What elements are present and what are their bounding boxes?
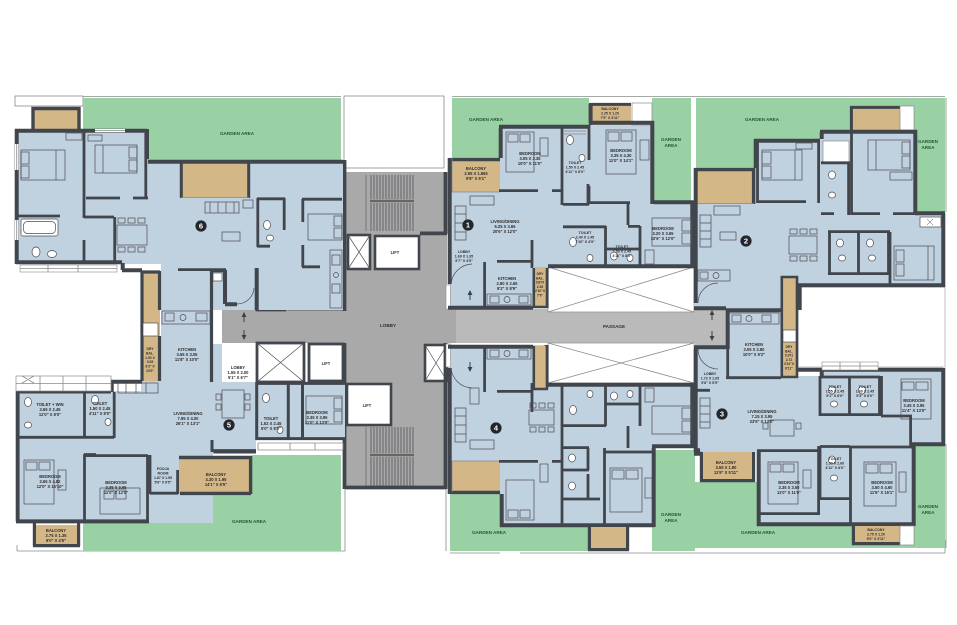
svg-text:7'10" X 4'9": 7'10" X 4'9" xyxy=(575,240,595,244)
svg-text:GARDEN AREA: GARDEN AREA xyxy=(469,117,504,122)
svg-text:1.50 X 2.60: 1.50 X 2.60 xyxy=(826,462,844,466)
svg-text:TOILET: TOILET xyxy=(829,385,843,389)
svg-text:6: 6 xyxy=(199,222,203,231)
svg-text:DRY: DRY xyxy=(146,347,154,351)
svg-text:3'3" X: 3'3" X xyxy=(145,365,155,369)
svg-text:11'0" X 11'6": 11'0" X 11'6" xyxy=(777,490,801,495)
svg-text:2.40 X 1.45: 2.40 X 1.45 xyxy=(576,236,594,240)
svg-text:1.00 X: 1.00 X xyxy=(145,356,156,360)
svg-text:2: 2 xyxy=(744,237,748,246)
svg-text:1.60 X 2.45: 1.60 X 2.45 xyxy=(856,390,874,394)
svg-text:4'11" X 8'0": 4'11" X 8'0" xyxy=(565,170,585,174)
svg-text:GARDEN: GARDEN xyxy=(918,504,939,509)
svg-text:11'4" X 13'0": 11'4" X 13'0" xyxy=(902,408,926,413)
svg-text:8'11": 8'11" xyxy=(785,367,793,371)
svg-text:1.50 X 2.45: 1.50 X 2.45 xyxy=(613,250,631,254)
svg-text:GARDEN: GARDEN xyxy=(661,512,682,517)
svg-text:10'6" X 12'0": 10'6" X 12'0" xyxy=(651,236,676,241)
svg-text:11'9" X 5'11": 11'9" X 5'11" xyxy=(714,470,738,475)
svg-text:12'0" X 8'0": 12'0" X 8'0" xyxy=(39,412,61,417)
svg-text:12'0" X 15'10": 12'0" X 15'10" xyxy=(37,484,64,489)
svg-text:LIFT: LIFT xyxy=(322,361,331,366)
svg-text:PASSAGE: PASSAGE xyxy=(603,324,625,329)
svg-text:11'0" X 12'0": 11'0" X 12'0" xyxy=(104,490,128,495)
svg-text:3: 3 xyxy=(720,410,724,419)
svg-text:9'0" X 3'11": 9'0" X 3'11" xyxy=(867,537,886,541)
svg-text:4'11" X 8'6": 4'11" X 8'6" xyxy=(825,466,845,470)
svg-text:TOILET: TOILET xyxy=(616,245,630,249)
svg-text:TOILET: TOILET xyxy=(859,385,873,389)
svg-text:11'0" X 13'0": 11'0" X 13'0" xyxy=(305,420,329,425)
svg-text:GARDEN AREA: GARDEN AREA xyxy=(472,530,507,535)
svg-text:7'5" X 3'11": 7'5" X 3'11" xyxy=(601,116,620,120)
svg-text:GARDEN: GARDEN xyxy=(661,137,682,142)
svg-text:4'11" X 8'0": 4'11" X 8'0" xyxy=(89,411,111,416)
svg-text:10'0": 10'0" xyxy=(146,369,154,373)
svg-text:1.67 X 1.95: 1.67 X 1.95 xyxy=(154,476,172,480)
svg-text:BAL.: BAL. xyxy=(146,351,154,355)
svg-text:9'0" X 4'5": 9'0" X 4'5" xyxy=(46,538,66,543)
svg-text:10'0" X 9'2": 10'0" X 9'2" xyxy=(743,352,765,357)
svg-text:5'7" X 4'5": 5'7" X 4'5" xyxy=(455,259,473,263)
svg-text:POOJA: POOJA xyxy=(157,467,170,471)
svg-text:GARDEN: GARDEN xyxy=(918,139,939,144)
svg-text:AREA: AREA xyxy=(921,510,935,515)
svg-text:1: 1 xyxy=(466,221,470,230)
svg-text:AREA: AREA xyxy=(664,143,678,148)
svg-text:BALCONY: BALCONY xyxy=(601,107,619,111)
svg-text:TOILET: TOILET xyxy=(829,457,843,461)
svg-text:TOILET: TOILET xyxy=(579,231,593,235)
svg-text:23'5" X 13'0": 23'5" X 13'0" xyxy=(750,419,775,424)
svg-text:5'3" X 8'0": 5'3" X 8'0" xyxy=(856,394,874,398)
svg-text:5'6" X 6'5": 5'6" X 6'5" xyxy=(154,481,171,485)
svg-text:LIFT: LIFT xyxy=(391,250,400,255)
svg-text:26'1" X 13'1": 26'1" X 13'1" xyxy=(176,421,201,426)
svg-text:GARDEN AREA: GARDEN AREA xyxy=(220,131,255,136)
svg-text:GARDEN AREA: GARDEN AREA xyxy=(741,530,776,535)
svg-text:LOBBY: LOBBY xyxy=(380,323,396,328)
svg-text:AREA: AREA xyxy=(664,518,678,523)
svg-text:1.55 X 2.45: 1.55 X 2.45 xyxy=(826,390,844,394)
svg-text:1.69 X 1.35: 1.69 X 1.35 xyxy=(455,255,473,259)
svg-text:11'0" X 14'1": 11'0" X 14'1" xyxy=(609,158,633,163)
svg-text:9'2" X 8'9": 9'2" X 8'9" xyxy=(497,286,517,291)
svg-text:11'6" X 15'1": 11'6" X 15'1" xyxy=(870,490,894,495)
svg-text:1.72 X 1.65: 1.72 X 1.65 xyxy=(701,377,719,381)
svg-text:2.75 X 1.20: 2.75 X 1.20 xyxy=(867,533,885,537)
svg-text:GARDEN AREA: GARDEN AREA xyxy=(232,519,267,524)
svg-text:14'1" X 6'5": 14'1" X 6'5" xyxy=(205,482,227,487)
svg-text:7'9": 7'9" xyxy=(537,294,543,298)
svg-text:20'6" X 12'0": 20'6" X 12'0" xyxy=(493,229,518,234)
svg-text:ROOM: ROOM xyxy=(158,472,169,476)
svg-text:GARDEN AREA: GARDEN AREA xyxy=(745,117,780,122)
svg-text:AREA: AREA xyxy=(921,145,935,150)
svg-text:10'0" X 11'0": 10'0" X 11'0" xyxy=(518,161,542,166)
svg-text:5'0" X 8'0": 5'0" X 8'0" xyxy=(261,426,281,431)
svg-text:2.25 X 1.20: 2.25 X 1.20 xyxy=(601,112,619,116)
svg-text:9'8" X 6'1": 9'8" X 6'1" xyxy=(466,176,486,181)
svg-text:5: 5 xyxy=(227,421,231,430)
svg-text:LIFT: LIFT xyxy=(363,403,372,408)
svg-text:TOILET: TOILET xyxy=(569,161,583,165)
svg-text:5'1" X 6'7": 5'1" X 6'7" xyxy=(228,375,248,380)
svg-text:3.05: 3.05 xyxy=(147,360,154,364)
svg-text:5'1" X 8'0": 5'1" X 8'0" xyxy=(826,394,844,398)
svg-text:1.50 X 2.45: 1.50 X 2.45 xyxy=(566,166,584,170)
svg-text:5'8" X 5'5": 5'8" X 5'5" xyxy=(701,381,719,385)
svg-text:LOBBY: LOBBY xyxy=(458,250,471,254)
svg-text:11'8" X 10'0": 11'8" X 10'0" xyxy=(175,357,199,362)
svg-text:4'11" X 8'0": 4'11" X 8'0" xyxy=(612,254,632,258)
svg-text:BALCONY: BALCONY xyxy=(867,528,885,532)
svg-text:LOBBY: LOBBY xyxy=(704,372,717,376)
